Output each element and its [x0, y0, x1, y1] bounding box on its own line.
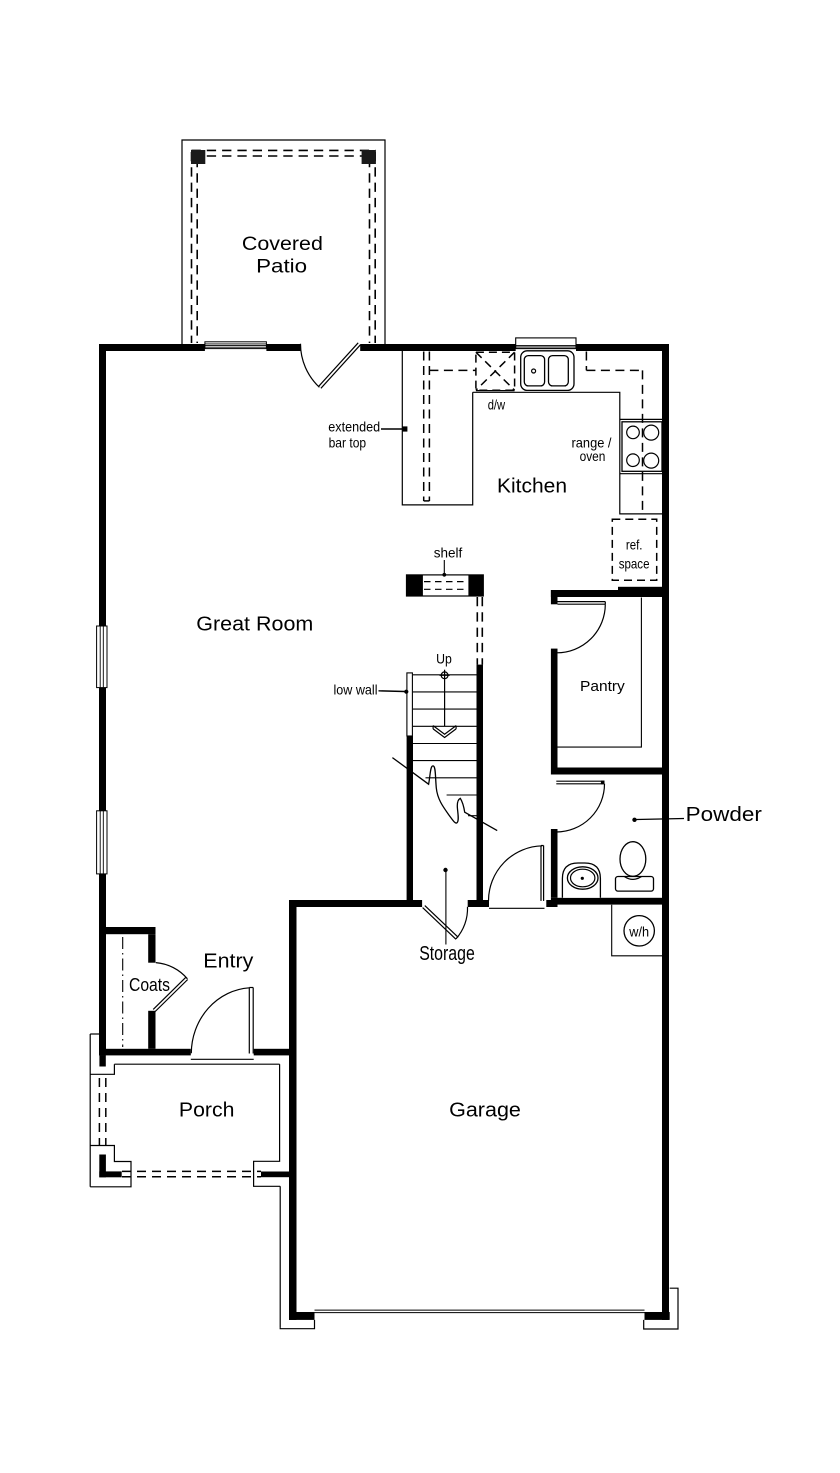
svg-text:Up: Up	[436, 651, 452, 666]
svg-text:Coats: Coats	[129, 974, 170, 995]
svg-text:Pantry: Pantry	[580, 679, 625, 695]
svg-text:Garage: Garage	[449, 1099, 521, 1121]
svg-text:Storage: Storage	[419, 943, 475, 965]
svg-text:Great Room: Great Room	[196, 614, 313, 636]
svg-text:Entry: Entry	[203, 950, 253, 972]
svg-text:w/h: w/h	[628, 925, 649, 940]
svg-text:Powder: Powder	[686, 804, 763, 826]
svg-text:d/w: d/w	[488, 398, 505, 413]
svg-text:low wall: low wall	[334, 682, 378, 697]
svg-text:Kitchen: Kitchen	[497, 475, 567, 497]
svg-text:bar top: bar top	[329, 436, 367, 451]
svg-text:ref.: ref.	[626, 537, 643, 552]
svg-text:shelf: shelf	[434, 546, 463, 561]
svg-text:Patio: Patio	[256, 257, 307, 278]
svg-text:oven: oven	[580, 449, 606, 464]
svg-text:Porch: Porch	[179, 1100, 235, 1122]
svg-text:extended: extended	[328, 419, 380, 434]
svg-text:Covered: Covered	[242, 234, 323, 255]
svg-text:space: space	[619, 557, 650, 572]
